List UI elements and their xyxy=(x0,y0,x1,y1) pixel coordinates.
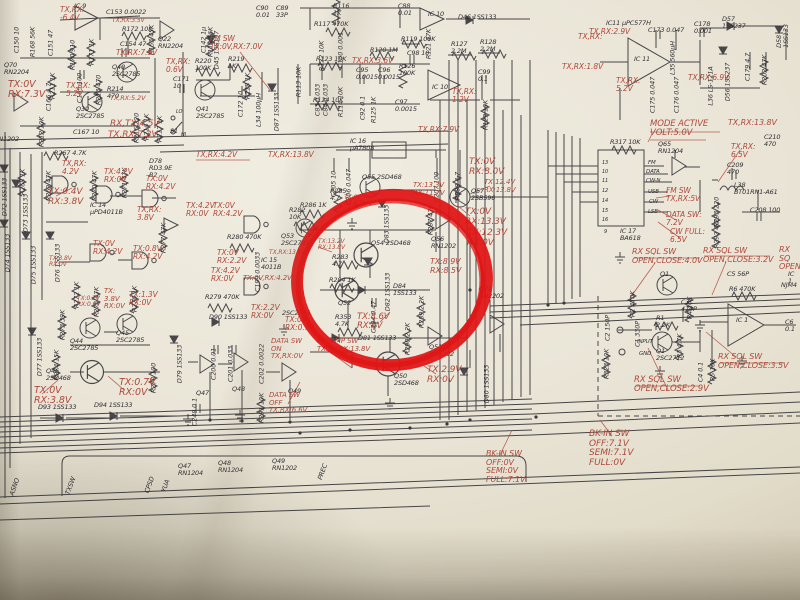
highlight-circle-annotation xyxy=(290,187,494,373)
schematic-photo: IC 9C150 10R168 56KC151 47R170 910R171 1… xyxy=(0,0,800,600)
marker-layer xyxy=(0,0,800,600)
